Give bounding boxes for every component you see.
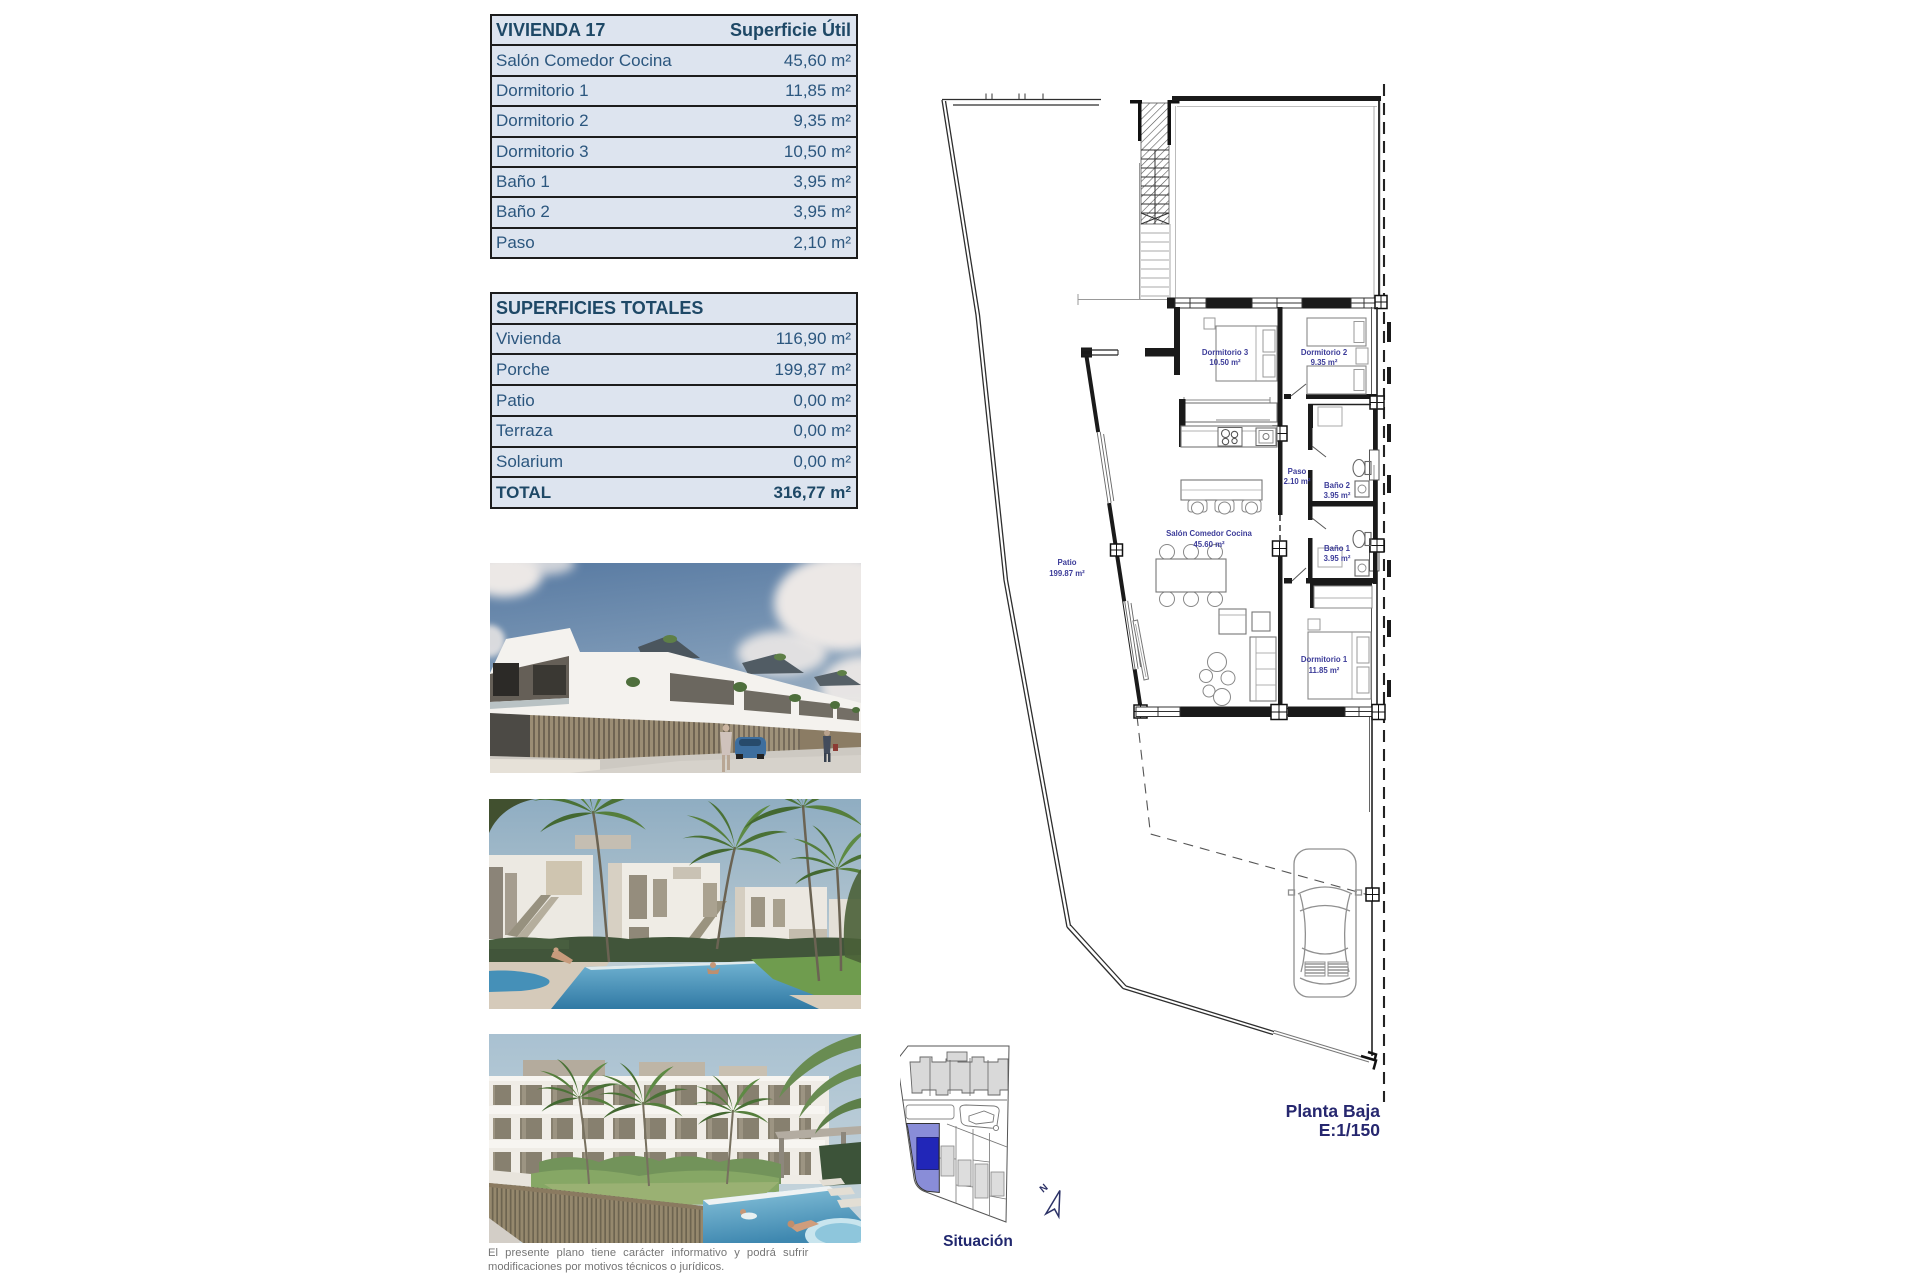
svg-text:Dormitorio 2: Dormitorio 2 [1301, 348, 1348, 357]
svg-text:Paso: Paso [1288, 467, 1307, 476]
svg-text:Baño 1: Baño 1 [1324, 544, 1351, 553]
svg-text:Salón Comedor Cocina: Salón Comedor Cocina [1166, 529, 1252, 538]
svg-text:2.10 m²: 2.10 m² [1284, 477, 1311, 486]
svg-text:Dormitorio 1: Dormitorio 1 [1301, 655, 1348, 664]
svg-text:E:1/150: E:1/150 [1319, 1120, 1381, 1140]
svg-text:Situación: Situación [943, 1233, 1013, 1250]
svg-text:3.95 m²: 3.95 m² [1324, 491, 1351, 500]
svg-text:3.95 m²: 3.95 m² [1324, 554, 1351, 563]
svg-text:199.87 m²: 199.87 m² [1049, 569, 1085, 578]
svg-text:10.50 m²: 10.50 m² [1209, 358, 1241, 367]
svg-text:Patio: Patio [1057, 558, 1076, 567]
svg-text:Planta Baja: Planta Baja [1286, 1101, 1381, 1121]
svg-text:N: N [1038, 1182, 1051, 1195]
svg-text:45.60 m²: 45.60 m² [1193, 540, 1225, 549]
svg-text:9.35 m²: 9.35 m² [1311, 358, 1338, 367]
svg-text:Dormitorio 3: Dormitorio 3 [1202, 348, 1249, 357]
svg-text:Baño 2: Baño 2 [1324, 481, 1351, 490]
svg-text:11.85 m²: 11.85 m² [1309, 666, 1340, 675]
